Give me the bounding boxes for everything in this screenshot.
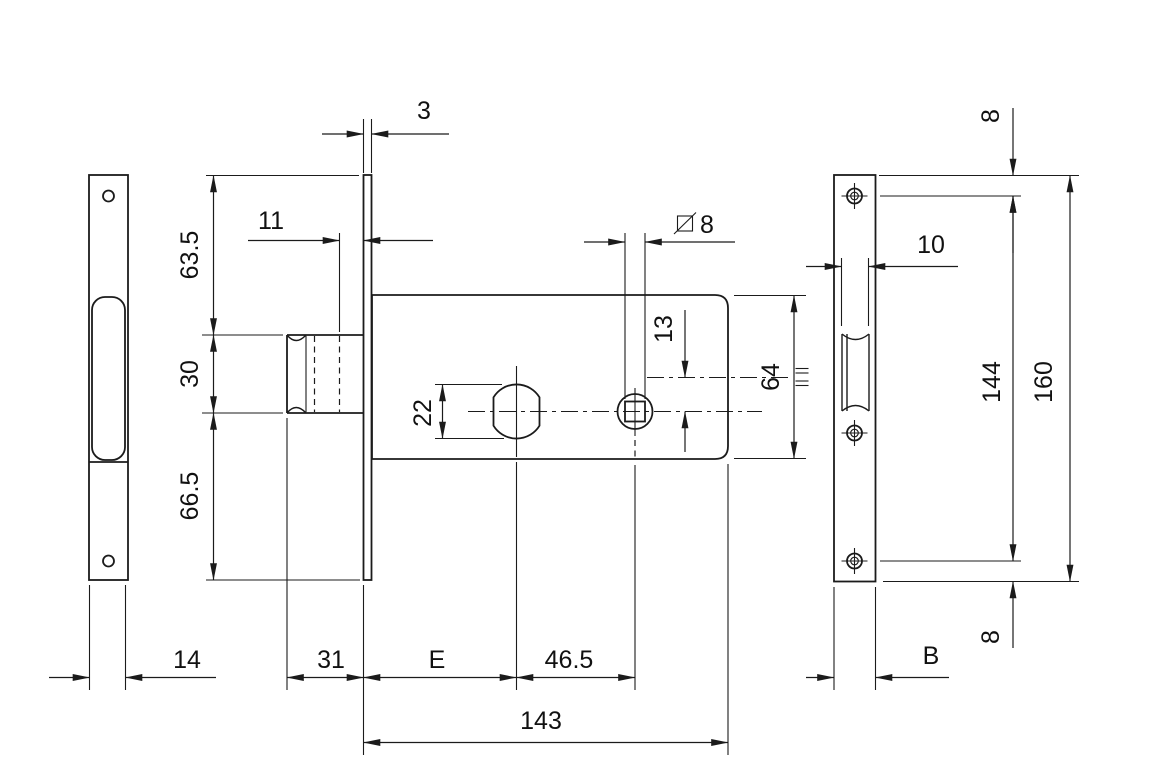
dim-label-backset: E (429, 646, 446, 674)
left-plate-slot (92, 297, 125, 460)
left-plate-outline (89, 175, 128, 580)
dimension-channel-width: 10 (806, 231, 958, 267)
square-section-icon (674, 213, 696, 235)
dim-label-edge-to-hole-top: 8 (977, 109, 1005, 123)
dimension-case-length: 143 (364, 464, 729, 755)
screw-hole-bottom (842, 548, 868, 574)
dimension-bottom-chain: 31 E 46.5 (287, 418, 635, 755)
dimension-left-stack: 63.5 30 66.5 (176, 176, 360, 581)
screw-hole-top (842, 183, 868, 209)
dim-label-channel-width: 10 (917, 231, 945, 259)
dimension-right-plate-width: B (806, 587, 949, 690)
dimension-left-plate-width: 14 (49, 585, 216, 690)
dimensions: 3 11 63.5 30 66.5 22 (49, 97, 1079, 755)
technical-drawing-page: 3 11 63.5 30 66.5 22 (0, 0, 1154, 778)
dim-label-top-section: 63.5 (176, 231, 204, 280)
left-plate-bottom-hole (103, 556, 114, 567)
dimension-cylinder-hole: 22 (409, 385, 504, 439)
dimension-cylinder-inset: 11 (248, 207, 433, 332)
dim-label-spindle-offset: 13 (650, 315, 678, 343)
dim-label-right-plate-width: B (923, 642, 940, 670)
dimension-plate-thickness: 3 (322, 97, 449, 173)
dim-label-left-plate-width: 14 (173, 646, 201, 674)
dim-label-edge-to-hole-bottom: 8 (977, 630, 1005, 644)
lock-technical-drawing: 3 11 63.5 30 66.5 22 (0, 0, 1154, 778)
dim-label-bottom-section: 66.5 (176, 472, 204, 521)
dim-label-case-length: 143 (520, 707, 562, 735)
dim-label-cylinder-to-spindle: 46.5 (545, 646, 594, 674)
cylinder-tube (287, 335, 364, 413)
screw-hole-middle (842, 420, 868, 446)
dim-label-cylinder-inset: 11 (258, 207, 284, 235)
dim-label-case-height: 64 (757, 363, 785, 391)
dimension-spindle-square: 8 (584, 211, 735, 399)
dim-label-plate-height: 160 (1030, 361, 1058, 403)
centerlines (468, 366, 788, 461)
dim-label-tube-diameter: 30 (176, 360, 204, 388)
dim-label-plate-thickness: 3 (417, 97, 431, 125)
dim-label-tube-length: 31 (317, 646, 345, 674)
dim-label-cylinder-hole: 22 (409, 399, 437, 427)
dim-label-hole-spacing: 144 (978, 361, 1006, 403)
dimension-spindle-offset: 13 (650, 310, 685, 452)
channel-slot (842, 258, 870, 411)
left-plate-top-hole (103, 191, 114, 202)
right-faceplate-view (834, 175, 876, 582)
dim-label-spindle-square: 8 (700, 211, 714, 239)
dimension-right-stack: 8 144 160 8 (879, 108, 1079, 648)
left-faceplate-view (89, 175, 128, 580)
faceplate-edge (364, 175, 372, 580)
symmetry-marks-icon (796, 369, 809, 386)
